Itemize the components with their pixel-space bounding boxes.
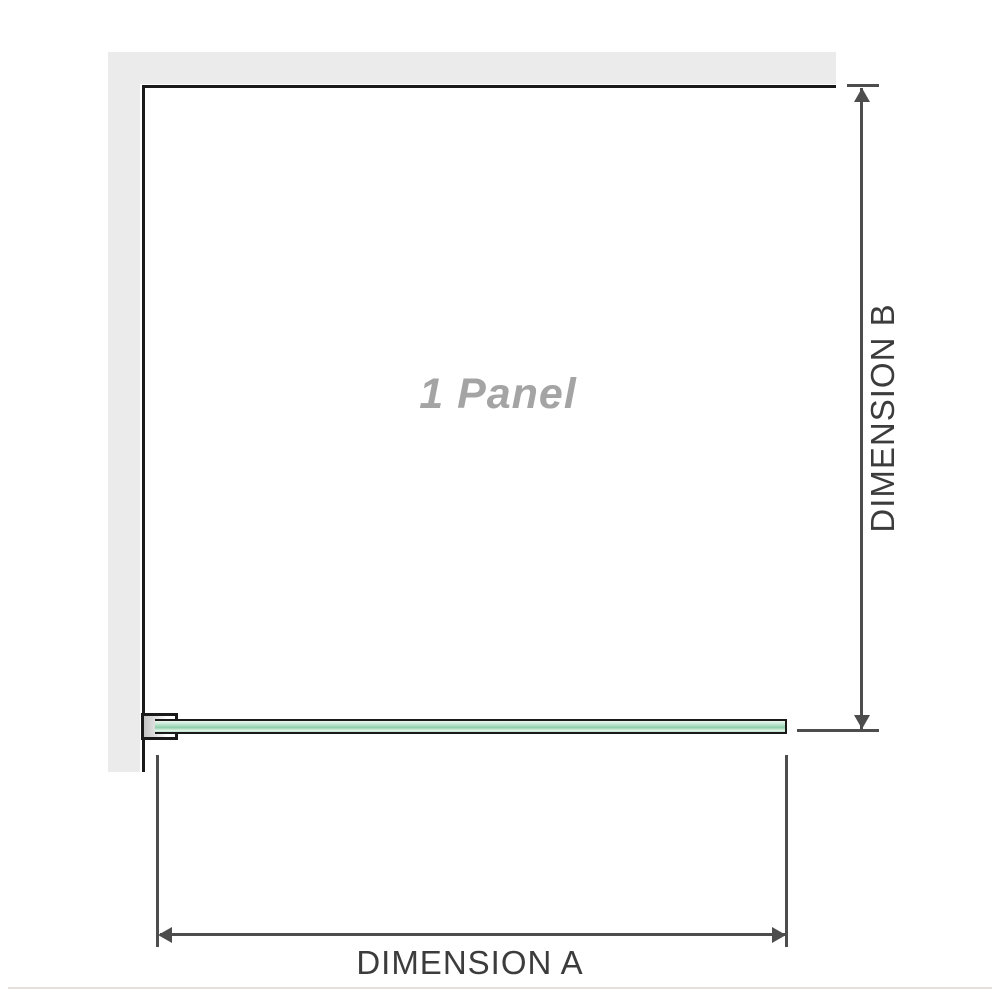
panel-dimension-diagram: 1 Panel DIMENSION B DIMENSION A <box>0 0 1000 1000</box>
dimension-b-line <box>860 88 863 730</box>
dimension-a-label: DIMENSION A <box>266 944 674 982</box>
dimension-b-tick-bottom <box>797 729 879 732</box>
glass-panel-bar <box>155 719 787 734</box>
page-divider <box>8 987 992 989</box>
dimension-b-label: DIMENSION B <box>865 268 901 568</box>
wall-top-strip <box>108 52 836 84</box>
panel-edge-top <box>142 85 836 88</box>
panel-edge-left <box>142 85 145 772</box>
wall-left-strip <box>108 52 140 772</box>
dimension-a-extension-left <box>156 755 159 947</box>
dimension-a-extension-right <box>785 755 788 947</box>
arrow-left-icon <box>158 927 172 943</box>
arrow-up-icon <box>854 88 870 102</box>
panel-count-label: 1 Panel <box>348 370 648 419</box>
dimension-a-line <box>160 933 786 936</box>
dimension-b-tick-top <box>847 84 879 87</box>
arrow-down-icon <box>854 715 870 729</box>
arrow-right-icon <box>772 927 786 943</box>
